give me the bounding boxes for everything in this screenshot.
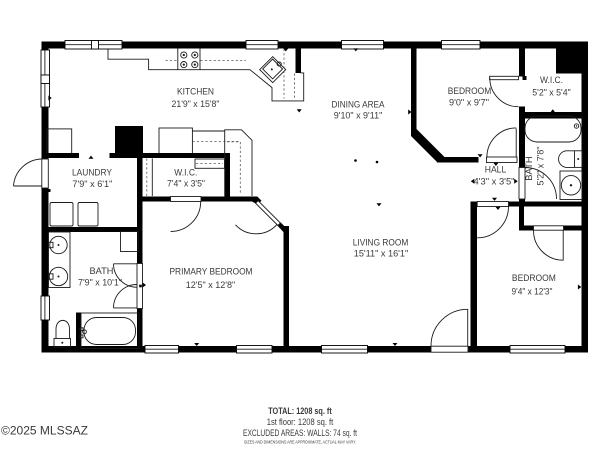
svg-text:KITCHEN: KITCHEN: [177, 86, 214, 96]
svg-text:LIVING ROOM: LIVING ROOM: [353, 237, 409, 247]
svg-text:HALL: HALL: [485, 164, 507, 174]
svg-text:5'2" x 5'4": 5'2" x 5'4": [532, 87, 571, 97]
svg-text:TOTAL: 1208 sq. ft: TOTAL: 1208 sq. ft: [268, 406, 332, 417]
svg-text:4'3" x 3'5": 4'3" x 3'5": [474, 176, 515, 186]
svg-text:9'0" x 9'7": 9'0" x 9'7": [449, 97, 489, 107]
svg-text:W.I.C.: W.I.C.: [174, 167, 197, 177]
svg-text:SIZES AND DIMENSIONS ARE APPRO: SIZES AND DIMENSIONS ARE APPROXIMATE, AC…: [244, 440, 356, 445]
svg-text:7'9" x 10'1": 7'9" x 10'1": [78, 277, 122, 287]
svg-text:21'9" x 15'8": 21'9" x 15'8": [172, 99, 220, 109]
svg-text:PRIMARY BEDROOM: PRIMARY BEDROOM: [170, 267, 253, 277]
svg-text:©2025 MLSSAZ: ©2025 MLSSAZ: [1, 424, 88, 438]
svg-text:7'9" x 6'1": 7'9" x 6'1": [72, 179, 112, 189]
svg-text:7'4" x 3'5": 7'4" x 3'5": [167, 178, 205, 188]
svg-text:BEDROOM: BEDROOM: [512, 273, 556, 283]
svg-text:DINING AREA: DINING AREA: [332, 99, 385, 109]
svg-text:LAUNDRY: LAUNDRY: [72, 167, 112, 177]
svg-text:9'4" x 12'3": 9'4" x 12'3": [512, 286, 553, 296]
svg-text:1st floor: 1208 sq. ft: 1st floor: 1208 sq. ft: [267, 417, 334, 427]
svg-text:12'5" x 12'8": 12'5" x 12'8": [186, 280, 236, 290]
svg-text:9'10" x 9'11": 9'10" x 9'11": [334, 110, 383, 120]
svg-text:BATH: BATH: [90, 266, 114, 276]
svg-text:EXCLUDED AREAS: WALLS: 74 sq.: EXCLUDED AREAS: WALLS: 74 sq. ft: [243, 428, 357, 438]
svg-text:15'11" x 16'1": 15'11" x 16'1": [354, 248, 409, 258]
svg-text:5'2" x 7'8": 5'2" x 7'8": [535, 147, 545, 186]
svg-text:BEDROOM: BEDROOM: [448, 86, 492, 96]
svg-text:W.I.C.: W.I.C.: [540, 75, 563, 85]
